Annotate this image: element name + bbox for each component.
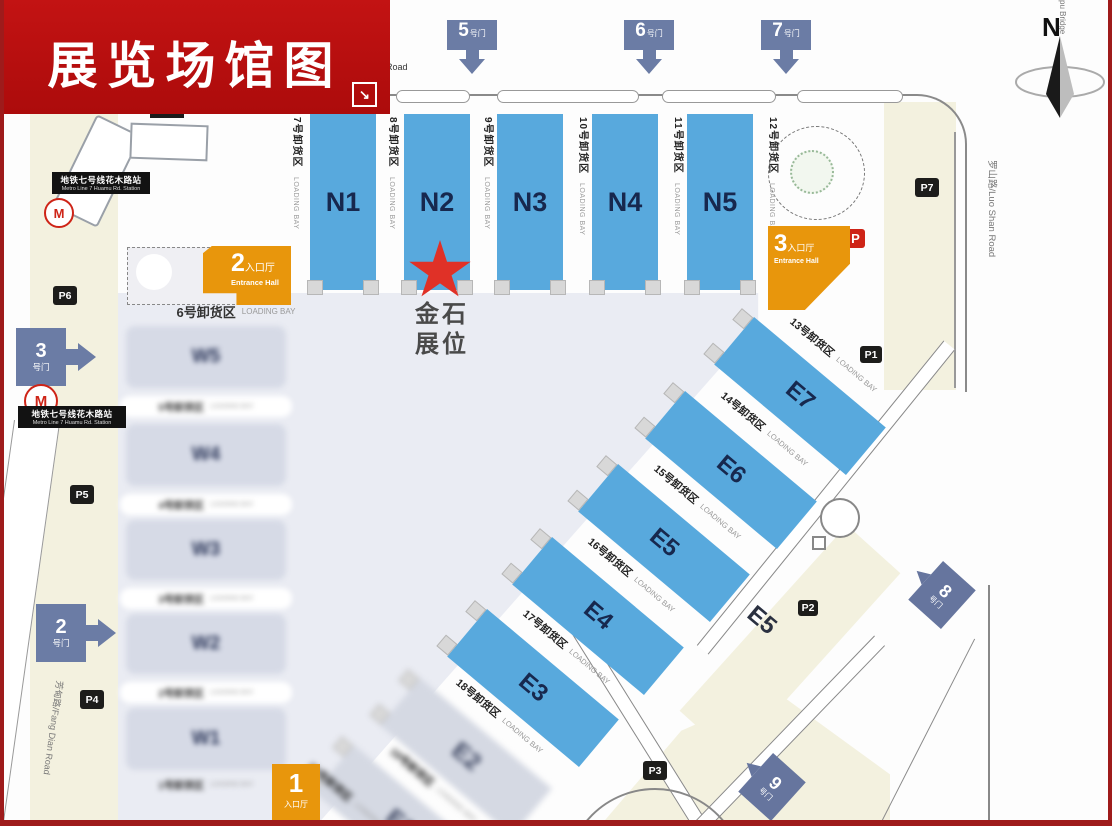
gate-6-arrow (643, 50, 656, 59)
gate-5-arrow (466, 50, 479, 59)
entrance-hall-1: 1 入口厅 (272, 764, 320, 826)
entrance-2-cn: 入口厅 (245, 263, 275, 274)
gate-7-arrow (780, 50, 793, 59)
entrance-3-en: Entrance Hall (774, 258, 850, 265)
right-edge-road (988, 585, 990, 826)
gate-5-arrowhead (459, 59, 485, 74)
entrance-2-en: Entrance Hall (203, 278, 291, 287)
gate-5: 5号门 (447, 20, 497, 50)
metro-logo-icon: M (44, 198, 74, 228)
parking-p3: P3 (643, 761, 667, 780)
loading-bay-3: 3号卸货区LOADING BAY (120, 588, 292, 609)
hall-w1: W1 (126, 708, 286, 770)
hall-w2: W2 (126, 614, 286, 674)
parking-p5: P5 (70, 485, 94, 504)
loading-bay-10: 10号卸货区LOADING BAY (577, 117, 592, 289)
parking-p4: P4 (80, 690, 104, 709)
metro-station-label: 地铁七号线花木路站 Metro Line 7 Huamu Rd. Station (18, 406, 126, 428)
gate-6-arrowhead (636, 59, 662, 74)
roundabout (820, 498, 860, 538)
circle-marker (136, 254, 172, 290)
building-outline (129, 123, 208, 162)
gate-7: 7号门 (761, 20, 811, 50)
loading-bay-4: 4号卸货区LOADING BAY (120, 494, 292, 515)
road-island (497, 90, 639, 103)
roundabout-stem (812, 536, 826, 550)
gate-2: 2号门 (36, 604, 86, 662)
entrance-3-cn: 入口厅 (787, 243, 814, 253)
metro-station-cn: 地铁七号线花木路站 (54, 174, 148, 186)
entrance-3-number: 3 (774, 230, 787, 257)
gate-6: 6号门 (624, 20, 674, 50)
hall-w4: W4 (126, 424, 286, 486)
road-island (797, 90, 903, 103)
entrance-1-number: 1 (289, 768, 303, 799)
hall-n3: N3 (497, 114, 563, 290)
gate-3-arrow (66, 349, 78, 365)
gate-8: 8号门 (908, 561, 975, 629)
gate-2-arrow (86, 625, 98, 641)
parking-p1: P1 (860, 346, 882, 363)
hall-n5: N5 (687, 114, 753, 290)
hall-n4: N4 (592, 114, 658, 290)
gate-3-arrowhead (78, 343, 96, 371)
frame-left (0, 0, 4, 826)
frame-bottom (0, 820, 1112, 826)
loading-bay-8: 8号卸货区LOADING BAY (387, 117, 402, 289)
parking-p6: P6 (53, 286, 77, 305)
compass-icon (1008, 34, 1112, 120)
gate-3: 3号门 (16, 328, 66, 386)
booth-label: 金石 展位 (402, 300, 482, 360)
gate-7-arrowhead (773, 59, 799, 74)
loading-bay-9: 9号卸货区LOADING BAY (482, 117, 497, 289)
loading-bay-1: 1号卸货区LOADING BAY (120, 776, 292, 792)
frame-right (1108, 0, 1112, 826)
parking-p7: P7 (915, 178, 939, 197)
map-title-banner: 展览场馆图 (0, 0, 390, 114)
road-name-luoshan: 罗山路/Luo Shan Road (986, 160, 1000, 360)
parking-p2: P2 (798, 600, 818, 616)
metro-station-en: Metro Line 7 Huamu Rd. Station (54, 186, 148, 192)
hall-w5: W5 (126, 326, 286, 388)
road-island (396, 90, 470, 103)
loading-bay-11: 11号卸货区LOADING BAY (672, 117, 687, 289)
loading-bay-7: 7号卸货区LOADING BAY (291, 117, 306, 289)
road-spur (879, 639, 975, 826)
entrance-1-cn: 入口厅 (284, 799, 308, 810)
loading-bay-2: 2号卸货区LOADING BAY (120, 682, 292, 703)
entrance-2-number: 2 (231, 249, 245, 277)
expand-icon[interactable]: ↘ (352, 82, 377, 107)
loading-bay-6: 6号卸货区 LOADING BAY (146, 303, 326, 319)
page-title: 展览场馆图 (0, 26, 390, 98)
hall-w3: W3 (126, 520, 286, 580)
tree-icon (790, 150, 834, 194)
venue-map: Road 地铁七号线花木路站 Metro Line 7 Huamu Rd. St… (0, 0, 1112, 826)
gate-2-arrowhead (98, 619, 116, 647)
metro-station-label: 地铁七号线花木路站 Metro Line 7 Huamu Rd. Station (52, 172, 150, 194)
hall-n1: N1 (310, 114, 376, 290)
road-island (662, 90, 776, 103)
loading-bay-5: 5号卸货区LOADING BAY (120, 396, 292, 417)
